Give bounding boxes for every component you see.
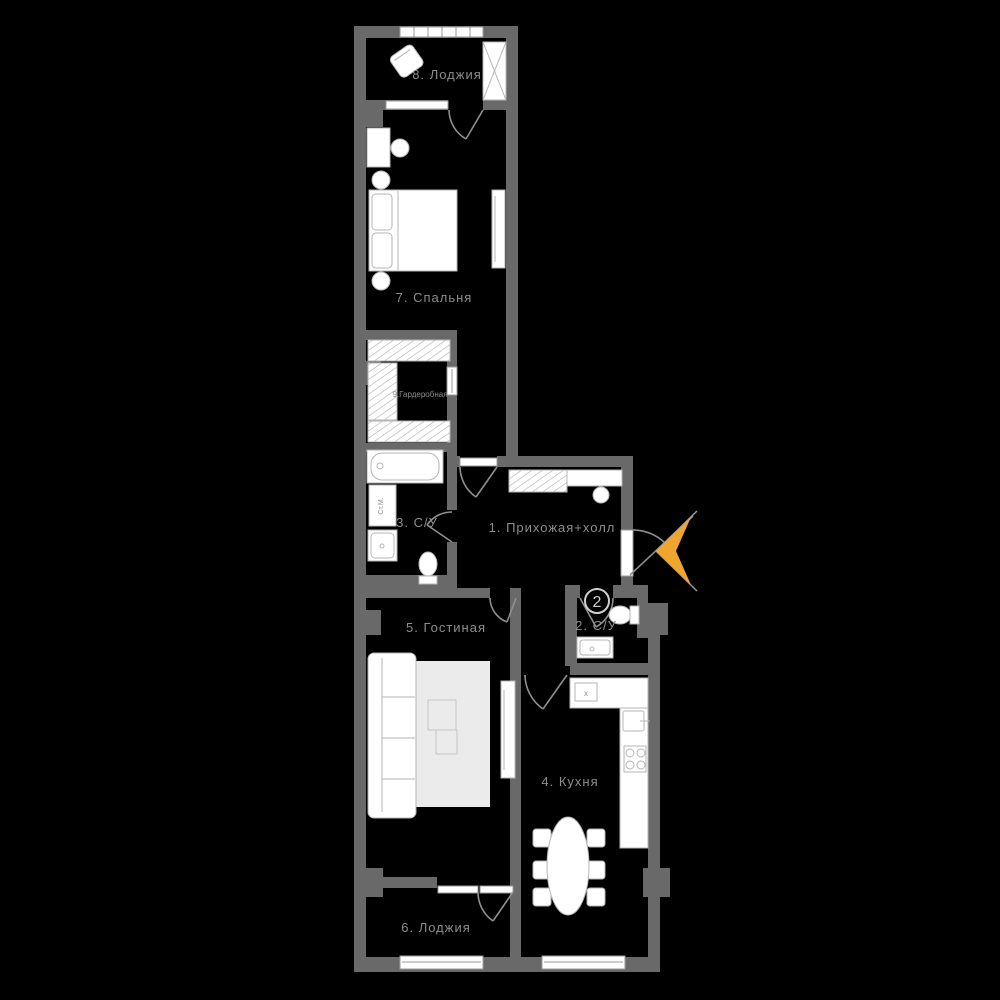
room-label-living: 5. Гостиная — [406, 620, 486, 635]
toilet-icon — [419, 552, 437, 584]
door-wardrobe — [447, 367, 457, 395]
dresser-icon — [492, 190, 505, 268]
nightstand-icon — [372, 171, 390, 189]
hall-cabinet-icon — [567, 470, 622, 486]
desk-icon — [367, 128, 390, 167]
clothes-rack-icon — [368, 340, 450, 361]
desk-chair-icon — [391, 139, 409, 157]
chair-icon — [587, 888, 605, 906]
pouf-icon — [593, 487, 609, 503]
entrance-badge: 2 — [585, 589, 609, 613]
room-label-hallway: 1. Прихожая+холл — [489, 520, 616, 535]
sink-icon — [577, 637, 613, 658]
entrance-badge-number: 2 — [593, 594, 602, 611]
room-label-bedroom: 7. Спальня — [396, 290, 473, 305]
chair-icon — [587, 861, 605, 879]
wardrobe-cabinet-icon — [483, 42, 506, 100]
floor-plan: 2 x — [0, 0, 1000, 1000]
window-loggia6-partition — [438, 886, 478, 893]
room-label-loggia8: 8. Лоджия — [412, 67, 482, 82]
bathtub-icon — [367, 450, 443, 483]
tv-console-icon — [501, 681, 515, 778]
chair-icon — [533, 829, 551, 847]
sink-icon — [368, 530, 397, 561]
room-label-loggia6: 6. Лоджия — [401, 920, 471, 935]
room-label-kitchen: 4. Кухня — [541, 774, 598, 789]
room-label-bathroom3: 3. С/У — [396, 515, 438, 530]
window-loggia8-partition — [386, 101, 448, 109]
clothes-rack-icon — [368, 421, 450, 442]
counter-mark: x — [584, 689, 588, 698]
washing-machine-label: Ст.М. — [378, 497, 385, 514]
coat-rack-icon — [509, 470, 567, 492]
dining-set-icon — [533, 817, 605, 915]
bed-icon — [369, 190, 457, 271]
chair-icon — [533, 888, 551, 906]
room-label-wardrobe: 9.Гардеробная — [392, 390, 447, 399]
chair-icon — [587, 829, 605, 847]
dining-table-icon — [547, 817, 589, 915]
floor-plan-canvas: 2 x — [0, 0, 1000, 1000]
background — [0, 0, 1000, 1000]
room-label-bathroom2: 2. С/У — [575, 618, 617, 633]
nightstand-icon — [372, 272, 390, 290]
sofa-icon — [368, 653, 416, 818]
